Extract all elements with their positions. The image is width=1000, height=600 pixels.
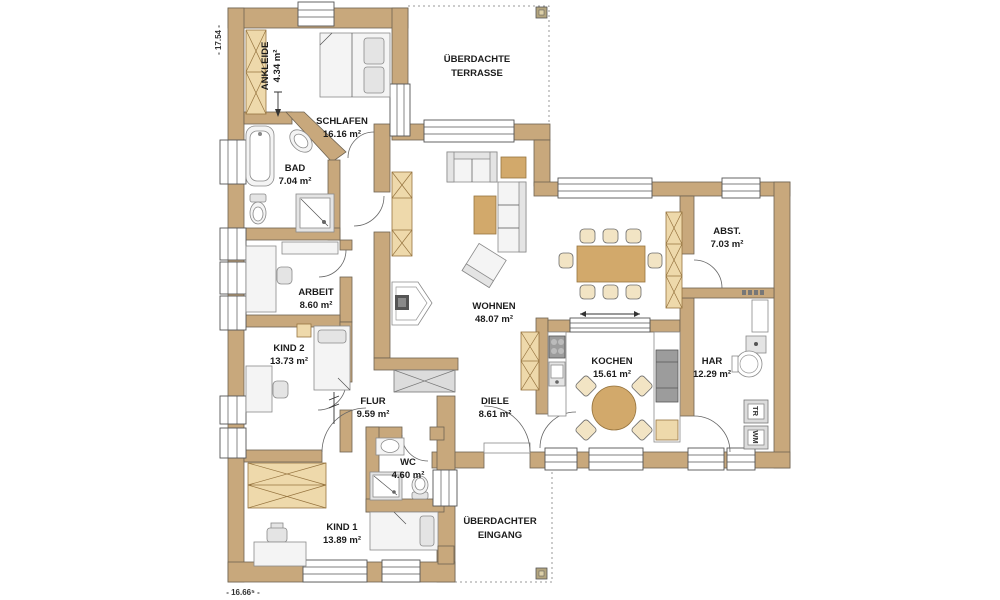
window bbox=[382, 560, 420, 582]
entrance-post bbox=[539, 571, 544, 576]
room-label-arbeit: ARBEIT bbox=[298, 287, 334, 298]
window bbox=[298, 2, 334, 26]
door-kochen bbox=[540, 412, 576, 448]
room-area-schlafen: 16.16 m² bbox=[323, 129, 361, 140]
coffee-table bbox=[474, 196, 496, 234]
room-label-ankleide: ANKLEIDE bbox=[260, 42, 271, 91]
terrace-window bbox=[424, 120, 514, 142]
window bbox=[722, 178, 760, 198]
door-corridor bbox=[354, 196, 384, 226]
window bbox=[220, 228, 246, 260]
kitchen-table bbox=[575, 375, 654, 442]
har-box bbox=[746, 336, 766, 353]
room-label-bad: BAD bbox=[285, 163, 306, 174]
window bbox=[220, 428, 246, 458]
window bbox=[688, 448, 724, 470]
desk-arbeit bbox=[246, 246, 292, 312]
window bbox=[433, 470, 457, 506]
cabinet-kochen bbox=[521, 332, 539, 390]
window bbox=[727, 448, 755, 470]
washing-machine: WM bbox=[744, 426, 768, 449]
sideboard-arbeit bbox=[282, 242, 338, 254]
room-area-bad: 7.04 m² bbox=[279, 176, 312, 187]
dryer-label: TR bbox=[751, 406, 760, 417]
window bbox=[220, 396, 246, 424]
kitchen-counter-right bbox=[654, 332, 680, 442]
room-area-arbeit: 8.60 m² bbox=[300, 300, 333, 311]
room-label-schlafen: SCHLAFEN bbox=[316, 116, 368, 127]
window bbox=[303, 560, 367, 582]
terrace-label-line2: TERRASSE bbox=[451, 68, 503, 79]
window bbox=[220, 262, 246, 294]
room-label-diele: DIELE bbox=[481, 396, 509, 407]
floor-plan-page: TR WM ANKLEIDE 4.34 m² SCHLAFEN 16.16 m²… bbox=[0, 0, 1000, 600]
toilet-bad bbox=[250, 194, 266, 224]
door-har bbox=[694, 416, 730, 452]
washbasin-wc bbox=[376, 438, 404, 455]
room-label-har: HAR bbox=[702, 356, 723, 367]
fireplace bbox=[392, 282, 432, 325]
kitchen-counter-left bbox=[548, 332, 566, 416]
terrace-label-line1: ÜBERDACHTE bbox=[444, 54, 511, 65]
sofa-three-seater bbox=[498, 182, 526, 252]
washer-label: WM bbox=[751, 430, 760, 443]
room-label-wc: WC bbox=[400, 457, 416, 468]
window bbox=[390, 84, 410, 136]
room-area-kind2: 13.73 m² bbox=[270, 356, 308, 367]
window bbox=[558, 178, 652, 198]
room-area-ankleide: 4.34 m² bbox=[272, 50, 283, 83]
cabinet-wohnen bbox=[392, 172, 412, 256]
room-area-flur: 9.59 m² bbox=[357, 409, 390, 420]
room-label-kind2: KIND 2 bbox=[273, 343, 304, 354]
room-label-kind1: KIND 1 bbox=[326, 522, 358, 533]
dryer: TR bbox=[744, 400, 768, 423]
room-area-har: 12.29 m² bbox=[693, 369, 731, 380]
dimension-bottom: - 16.66⁵ - bbox=[226, 588, 260, 597]
room-label-flur: FLUR bbox=[360, 396, 385, 407]
dimension-left: - 17.54 - bbox=[214, 25, 223, 55]
wardrobe-kind1 bbox=[248, 463, 326, 508]
section-marker bbox=[329, 392, 339, 424]
sofa-two-seater bbox=[447, 152, 497, 182]
window bbox=[545, 448, 577, 470]
bathtub bbox=[246, 126, 274, 186]
terrace-post bbox=[539, 10, 544, 15]
sliding-door-kitchen bbox=[570, 311, 650, 332]
room-area-kochen: 15.61 m² bbox=[593, 369, 631, 380]
room-area-abst: 7.03 m² bbox=[711, 239, 744, 250]
room-area-diele: 8.61 m² bbox=[479, 409, 512, 420]
room-area-wc: 4.60 m² bbox=[392, 470, 425, 481]
room-area-kind1: 13.89 m² bbox=[323, 535, 361, 546]
pillar-kind1 bbox=[438, 546, 454, 564]
wardrobe-diele bbox=[394, 370, 455, 392]
desk-kind2 bbox=[246, 366, 288, 412]
window bbox=[589, 448, 643, 470]
room-label-abst: ABST. bbox=[713, 226, 740, 237]
window bbox=[220, 140, 246, 184]
window bbox=[220, 296, 246, 330]
double-bed bbox=[320, 33, 390, 97]
entrance-label-line2: EINGANG bbox=[478, 530, 522, 541]
har-sink bbox=[732, 351, 762, 377]
desk-kind1 bbox=[254, 523, 306, 566]
har-shelf bbox=[752, 300, 768, 332]
cabinet-dining bbox=[666, 212, 682, 308]
entrance-label-line1: ÜBERDACHTER bbox=[463, 516, 537, 527]
room-label-wohnen: WOHNEN bbox=[472, 301, 515, 312]
floor-plan: TR WM ANKLEIDE 4.34 m² SCHLAFEN 16.16 m²… bbox=[0, 0, 1000, 600]
dining-table bbox=[577, 246, 645, 282]
room-area-wohnen: 48.07 m² bbox=[475, 314, 513, 325]
bed-kind1 bbox=[370, 512, 438, 550]
room-label-kochen: KOCHEN bbox=[591, 356, 632, 367]
door-abst bbox=[694, 260, 722, 288]
shower-bad bbox=[296, 194, 334, 232]
side-table bbox=[501, 157, 526, 178]
